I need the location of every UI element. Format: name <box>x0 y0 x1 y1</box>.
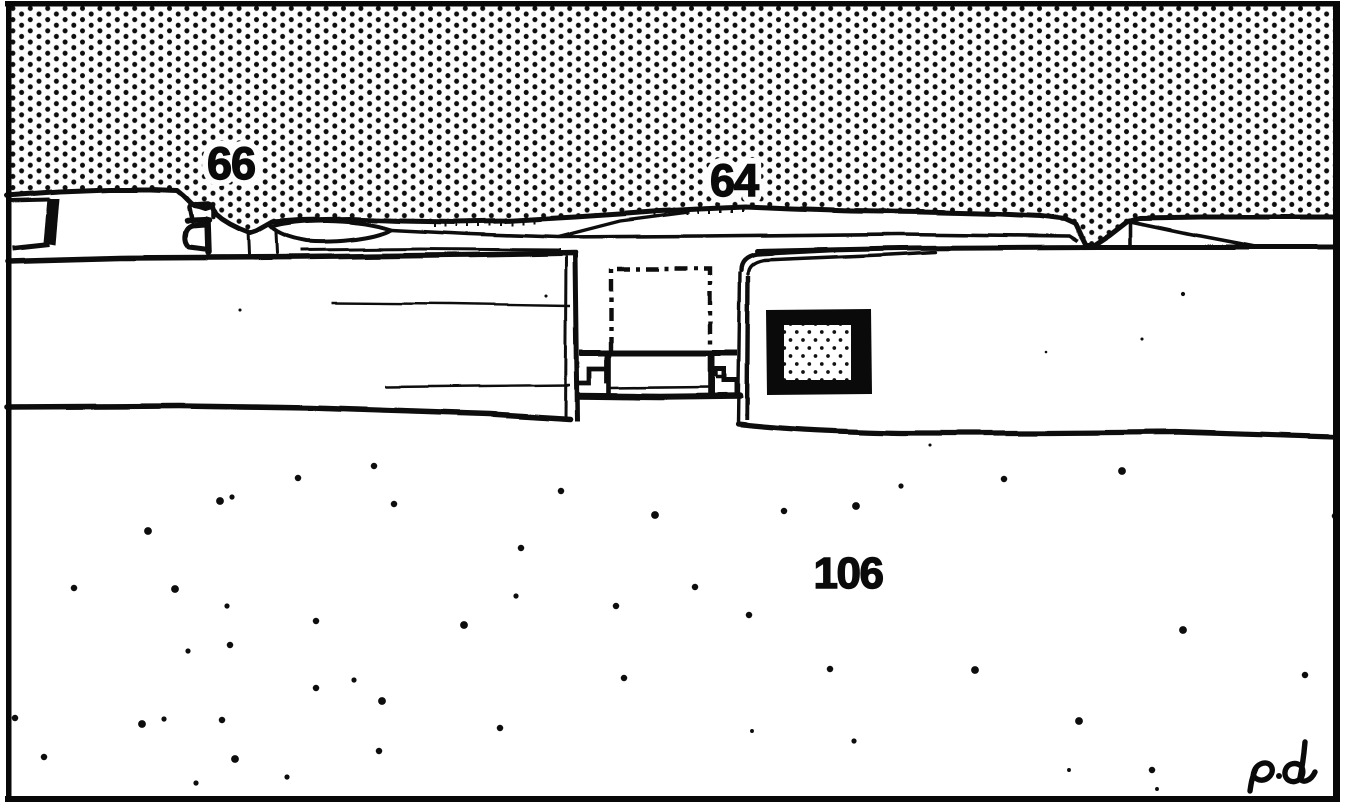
svg-text:66: 66 <box>207 138 255 189</box>
svg-text:106: 106 <box>814 549 883 598</box>
svg-text:64: 64 <box>710 155 759 206</box>
